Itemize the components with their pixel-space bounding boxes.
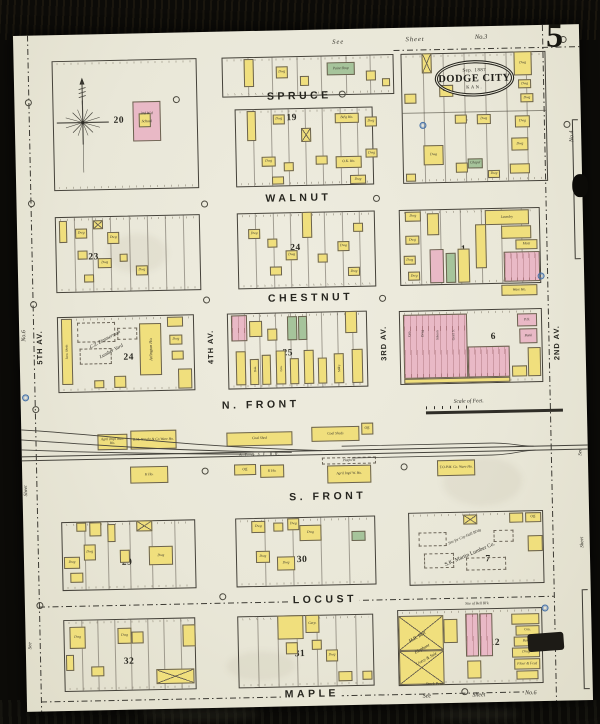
reference-circle-marker — [32, 406, 39, 413]
building: Dwg — [405, 236, 419, 245]
building — [298, 316, 308, 340]
lot-line — [324, 213, 326, 287]
compass-rose — [52, 76, 114, 177]
water-marker — [542, 604, 549, 611]
building: Chapel — [468, 158, 483, 168]
building — [468, 346, 511, 378]
lot-line — [183, 215, 185, 289]
building-label: Ware Ho. — [512, 287, 527, 292]
map-annotation: Stock Pens — [426, 681, 444, 686]
lot-line — [420, 211, 422, 285]
building — [318, 357, 328, 383]
lot-line — [272, 214, 274, 288]
building — [77, 250, 87, 259]
building — [345, 311, 357, 333]
building — [250, 359, 260, 385]
map-annotation: Site of Bell Bl'k — [465, 601, 489, 605]
building-label: Dwg — [328, 653, 336, 658]
building — [493, 530, 513, 542]
building — [172, 350, 184, 359]
building: Dwg — [520, 93, 533, 102]
building — [59, 221, 67, 243]
street-label-spruce: SPRUCE — [267, 89, 332, 102]
building — [382, 78, 390, 86]
building-label: Dwg — [157, 553, 165, 558]
building: Dwg — [273, 114, 285, 124]
building: Dwg — [365, 116, 377, 126]
building: Dwg — [136, 265, 148, 275]
building: Ware Ho. — [501, 284, 537, 296]
building — [114, 376, 126, 388]
building-label: Dwg — [86, 550, 94, 555]
building-label: Dwg — [521, 81, 529, 86]
building — [231, 315, 248, 341]
map-annotation: Arlington Ho. — [148, 338, 153, 361]
map-annotation: Mill'y — [337, 364, 341, 372]
building — [421, 53, 431, 73]
building — [318, 253, 328, 262]
building: Dwg — [64, 557, 80, 569]
building: Dwg — [169, 335, 182, 345]
water-marker — [419, 122, 426, 129]
building: Dwg — [69, 627, 85, 649]
building — [89, 522, 101, 536]
building-label: Dwg — [368, 151, 376, 156]
building-label: Dwg — [408, 238, 416, 243]
building: Dwg — [84, 544, 96, 560]
building — [131, 631, 143, 643]
building — [479, 613, 493, 656]
building — [362, 671, 372, 680]
building — [510, 163, 530, 173]
building-label: Dwg — [259, 554, 267, 559]
building-label: Gro. — [524, 628, 532, 633]
lot-line — [322, 109, 324, 185]
reference-circle-marker — [339, 91, 346, 98]
building — [467, 660, 481, 678]
block-number: 19 — [286, 113, 297, 123]
map-annotation: Sheet — [580, 537, 585, 548]
building-label: Dwg — [282, 561, 290, 566]
building — [511, 613, 539, 625]
building-label: Dwg — [265, 159, 273, 164]
building — [267, 329, 277, 341]
building: Dwg — [287, 518, 299, 530]
lot-line — [147, 619, 149, 689]
building-label: Laundry — [500, 215, 513, 220]
building-label: Dwg — [74, 635, 82, 640]
building-label: Off. — [530, 515, 537, 520]
building — [475, 224, 487, 268]
building — [455, 115, 467, 124]
scan-artifact — [430, 708, 520, 720]
building-label: Dwg — [519, 61, 527, 66]
building — [70, 573, 83, 583]
building: Dwg — [117, 628, 131, 644]
lot-line — [110, 217, 112, 291]
building-label: Dwg — [288, 253, 296, 258]
lot-line — [114, 620, 116, 690]
building — [302, 212, 313, 238]
building-label: Dwg — [490, 171, 498, 176]
building-label: Dwg — [306, 530, 314, 535]
reference-circle-marker — [25, 99, 32, 106]
map-annotation: No.3 — [475, 34, 488, 41]
street-label-maple: MAPLE — [282, 687, 342, 700]
building-label: Dwg — [250, 232, 258, 237]
building-label: Dwg — [278, 70, 286, 75]
building: Dwg — [515, 115, 530, 127]
building — [353, 223, 363, 232]
building: Bank — [519, 328, 537, 343]
lot-line — [174, 521, 176, 588]
building — [465, 613, 479, 656]
lot-line — [165, 216, 167, 290]
building-label: Dwg — [409, 214, 417, 219]
map-annotation: No.6 — [21, 330, 27, 342]
street-label-chestnut: CHESTNUT — [268, 291, 353, 305]
map-annotation: 3rd W'd — [141, 111, 153, 115]
building-label: Dwg — [523, 95, 531, 100]
building — [512, 365, 527, 376]
map-annotation: No.6 — [525, 690, 537, 696]
building — [504, 251, 541, 282]
building: Dwg — [98, 258, 112, 268]
lot-line — [146, 216, 148, 290]
building — [91, 666, 104, 676]
lot-line — [255, 214, 257, 288]
reference-circle-marker — [201, 200, 208, 207]
building-label: Carp. — [308, 621, 317, 626]
avenue-label-2nd-av-: 2ND AV. — [552, 325, 562, 360]
building-label: O.K. Ho. — [342, 159, 356, 164]
building: Carp. — [305, 615, 319, 633]
building-label: Dwg — [406, 258, 414, 263]
building — [136, 520, 152, 531]
building: Dwg — [248, 229, 260, 239]
water-marker — [22, 394, 29, 401]
building — [277, 615, 303, 640]
building — [427, 213, 439, 235]
building — [300, 76, 309, 86]
lot-line — [355, 615, 357, 685]
building: Dwg — [149, 546, 173, 565]
avenue-label-4th-av-: 4TH AV. — [206, 330, 216, 364]
building — [290, 358, 300, 384]
reference-circle-marker — [28, 200, 35, 207]
building-label: Dwg — [367, 119, 375, 124]
building — [249, 321, 262, 337]
building: P.O. — [517, 313, 537, 326]
building-label: Paint Shop — [332, 66, 349, 71]
building — [182, 624, 195, 646]
building: Dwg — [299, 525, 321, 541]
building: Dwg — [477, 114, 491, 124]
building-label: P.O. — [523, 317, 530, 322]
building — [418, 532, 446, 547]
building — [93, 220, 103, 229]
building-label: Dwg — [289, 522, 297, 527]
building-label: Dwg — [172, 337, 180, 342]
building — [120, 550, 130, 563]
building: Dwg — [348, 267, 360, 276]
building: Dwg — [518, 79, 531, 88]
building — [366, 70, 376, 80]
building-label: Dwg — [410, 274, 418, 279]
water-marker — [538, 272, 545, 279]
building-label: Dwg — [254, 524, 262, 529]
building-label: Dwg — [516, 141, 524, 146]
building-label: Dwg — [350, 269, 358, 274]
building — [316, 155, 328, 164]
building — [463, 514, 477, 524]
building — [120, 254, 128, 262]
building — [270, 266, 282, 275]
building: Dwg — [513, 51, 531, 75]
building — [528, 535, 543, 551]
reference-circle-marker — [30, 301, 37, 308]
building: Dwg — [350, 175, 366, 184]
reference-circle-marker — [219, 593, 226, 600]
building: Dwg — [423, 145, 443, 165]
building — [244, 59, 255, 87]
building: Dwg — [251, 521, 265, 533]
street-label-locust: LOCUST — [290, 593, 360, 606]
building — [528, 347, 542, 376]
building — [94, 380, 104, 388]
street-label-n-front: N. FRONT — [222, 398, 300, 412]
building — [247, 111, 257, 141]
building — [501, 225, 531, 239]
building — [458, 248, 471, 282]
building: Paint Shop — [327, 62, 355, 76]
block-number: 6 — [491, 332, 496, 342]
building-label: Dwg — [121, 633, 129, 638]
building — [456, 163, 468, 173]
building — [284, 162, 294, 171]
building — [338, 671, 352, 681]
building: Dwg — [337, 241, 349, 251]
building-label: Dwg — [518, 119, 526, 124]
building — [272, 176, 284, 184]
building-label: Meat — [522, 242, 530, 247]
map-annotation: See — [332, 39, 344, 46]
building — [287, 316, 298, 340]
paper-notch — [572, 174, 588, 197]
building — [406, 174, 416, 182]
building: Meat — [515, 239, 537, 249]
map-annotation: Bak. — [253, 366, 257, 372]
building: O.K. Ho. — [336, 156, 362, 169]
building-label: Dwg — [340, 244, 348, 249]
building-label: Dwg — [354, 177, 362, 182]
building-label: Dwg — [77, 231, 85, 236]
map-annotation: Scale of Feet. — [454, 398, 484, 405]
building: Dwg — [286, 250, 298, 260]
building-label: Dwg — [68, 560, 76, 565]
building — [443, 619, 457, 643]
building: Dwg — [511, 137, 528, 150]
building: Off. — [525, 512, 541, 522]
building: Dwg — [75, 228, 87, 238]
reference-circle-marker — [36, 602, 43, 609]
building — [509, 512, 523, 522]
building: Dwg — [107, 232, 119, 244]
map-annotation: Sheet — [406, 36, 425, 43]
building-label: Bd'g Ho. — [340, 115, 354, 120]
lot-line — [258, 617, 260, 687]
building — [286, 642, 298, 654]
alley-line — [403, 110, 546, 114]
block-number: 30 — [297, 555, 308, 565]
building-label: Flour & Feed — [517, 661, 538, 666]
building: Dwg — [276, 66, 288, 78]
lot-line — [97, 620, 99, 690]
avenue-label-3rd-av-: 3RD AV. — [379, 326, 389, 361]
railroad-tracks — [21, 412, 588, 500]
building — [352, 349, 364, 383]
building — [403, 314, 468, 379]
building: Bd'g Ho. — [335, 113, 359, 124]
map-annotation: Saloon — [435, 330, 439, 340]
building — [430, 249, 445, 283]
block-number: 24 — [123, 353, 134, 363]
block-number: 32 — [124, 657, 135, 667]
building-label: Chapel — [469, 161, 480, 166]
building — [446, 253, 457, 283]
building — [267, 239, 277, 248]
building-label: Bank — [524, 333, 532, 338]
title-state: KAN. — [466, 84, 483, 89]
reference-circle-marker — [379, 295, 386, 302]
building — [527, 632, 564, 653]
map-annotation: See — [28, 642, 33, 649]
building-label: Dwg — [480, 117, 488, 122]
building — [84, 274, 94, 282]
title-city: DODGE CITY — [438, 72, 511, 85]
lot-line — [348, 517, 350, 584]
map-sheet: 201918232412425629307323112DwgPaint Shop… — [13, 24, 593, 712]
map-annotation: Gro. — [279, 366, 283, 372]
sheet-number: 5 — [546, 20, 563, 54]
building: Dwg — [488, 170, 500, 178]
building — [516, 670, 538, 679]
building: Dwg — [408, 272, 420, 281]
building: Dwg — [365, 148, 377, 157]
building — [466, 557, 506, 571]
block-number: 20 — [113, 116, 124, 126]
building: Dwg — [277, 556, 295, 570]
building-label: Dwg — [430, 153, 438, 158]
building: Dwg — [326, 649, 338, 661]
building: Dwg — [404, 256, 416, 265]
building — [273, 522, 283, 531]
map-annotation: School — [142, 119, 152, 123]
building — [301, 128, 311, 142]
lot-line — [305, 109, 307, 185]
map-annotation: Sheet — [472, 692, 485, 698]
reference-circle-marker — [563, 121, 570, 128]
building-label: Dwg — [138, 268, 146, 273]
building — [167, 317, 183, 327]
map-annotation: See — [423, 693, 431, 699]
reference-circle-marker — [203, 296, 210, 303]
building — [404, 94, 416, 104]
building — [156, 668, 194, 684]
map-annotation: Gro. — [407, 331, 411, 337]
building — [351, 531, 365, 541]
building — [66, 655, 74, 671]
map-annotation: Drug — [420, 330, 424, 337]
building-label: Dwg — [101, 261, 109, 266]
building — [304, 350, 315, 384]
building-label: Dwg — [109, 235, 117, 240]
building — [236, 351, 247, 385]
building: Laundry — [485, 209, 529, 225]
building: Flour & Feed — [514, 658, 540, 670]
building — [312, 640, 322, 650]
building — [262, 355, 272, 385]
building — [178, 368, 192, 388]
building: Dwg — [405, 211, 421, 221]
street-label-walnut: WALNUT — [265, 191, 331, 204]
reference-circle-marker — [373, 195, 380, 202]
building — [76, 523, 86, 532]
reference-circle-marker — [461, 688, 468, 695]
map-annotation: Gen'l S. — [451, 329, 455, 340]
building-label: Dwg — [275, 117, 283, 122]
building — [107, 524, 115, 542]
building: Dwg — [256, 551, 270, 563]
lot-line — [128, 217, 130, 291]
map-annotation: Lum. Sheds — [64, 345, 68, 360]
avenue-label-5th-av-: 5TH AV. — [35, 330, 45, 364]
building: Dwg — [262, 157, 276, 167]
